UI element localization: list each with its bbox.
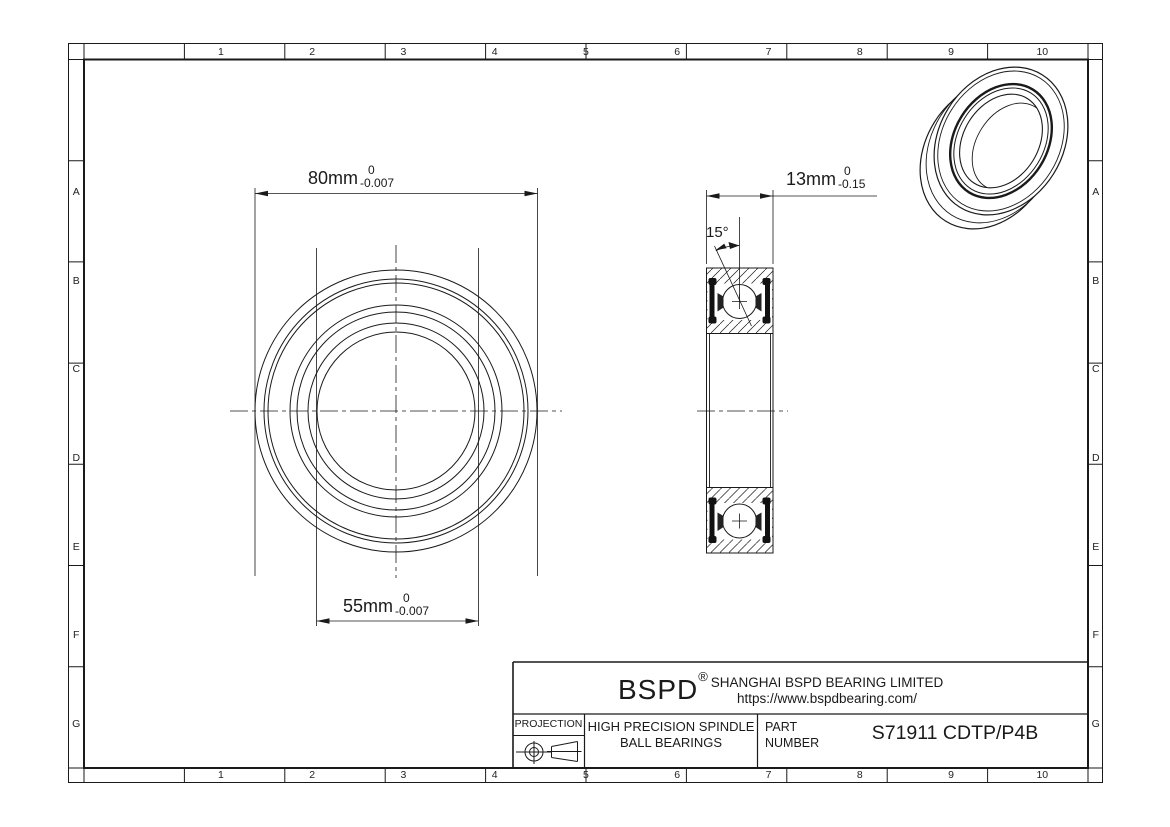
grid-row-label: G (69, 679, 85, 768)
grid-column-label: 2 (267, 768, 358, 783)
company-website: https://www.bspdbearing.com/ (703, 691, 951, 706)
grid-column-label: 3 (358, 768, 449, 783)
product-line-2: BALL BEARINGS (585, 735, 757, 751)
projection-symbol-icon (516, 741, 582, 764)
company-logo: BSPD® (618, 669, 708, 706)
front-view-centerlines (230, 245, 562, 578)
dimension-tolerance: 0 -0.15 (838, 165, 865, 191)
grid-column-label: 4 (449, 44, 540, 60)
outer-diameter-dimension: 80mm 0 -0.007 (308, 163, 394, 193)
engineering-drawing-page: 12345678910 12345678910 ABCDEFG ABCDEFG … (0, 0, 1170, 827)
grid-column-label: 8 (814, 44, 905, 60)
contact-angle-label: 15° (706, 224, 729, 241)
grid-row-label: C (69, 325, 85, 414)
grid-row-label: G (1088, 679, 1104, 768)
grid-column-label: 1 (175, 768, 266, 783)
row-labels-right: ABCDEFG (1088, 60, 1104, 769)
grid-column-label: 8 (814, 768, 905, 783)
grid-row-label: D (1088, 414, 1104, 503)
grid-column-label: 6 (632, 768, 723, 783)
grid-row-label: B (69, 237, 85, 326)
part-number-value: S71911 CDTP/P4B (830, 722, 1080, 745)
isometric-bearing-view (893, 42, 1095, 254)
grid-column-label: 4 (449, 768, 540, 783)
product-line-1: HIGH PRECISION SPINDLE (585, 719, 757, 735)
grid-column-label: 2 (267, 44, 358, 60)
drawing-linework (0, 0, 1170, 827)
dimension-tolerance: 0 -0.007 (395, 592, 429, 618)
grid-row-label (69, 60, 85, 149)
company-name: SHANGHAI BSPD BEARING LIMITED (703, 675, 951, 690)
grid-row-label: C (1088, 325, 1104, 414)
grid-column-label (84, 768, 175, 783)
grid-row-label: A (69, 148, 85, 237)
grid-row-label: F (69, 591, 85, 680)
bore-diameter-dimension: 55mm 0 -0.007 (343, 591, 429, 621)
grid-column-label (84, 44, 175, 60)
grid-row-label: F (1088, 591, 1104, 680)
product-description: HIGH PRECISION SPINDLE BALL BEARINGS (585, 719, 757, 751)
grid-column-label: 9 (905, 44, 996, 60)
dimension-value: 55mm (343, 596, 393, 617)
grid-row-label: D (69, 414, 85, 503)
grid-column-label: 7 (723, 44, 814, 60)
grid-column-label: 5 (540, 768, 631, 783)
logo-text: BSPD (618, 674, 698, 705)
grid-row-label (1088, 60, 1104, 149)
grid-row-label: E (1088, 502, 1104, 591)
grid-column-label: 1 (175, 44, 266, 60)
grid-column-label: 10 (997, 768, 1088, 783)
dimension-value: 80mm (308, 168, 358, 189)
width-dimension: 13mm 0 -0.15 (786, 164, 865, 194)
grid-column-label: 9 (905, 768, 996, 783)
grid-row-label: E (69, 502, 85, 591)
grid-row-label: B (1088, 237, 1104, 326)
grid-column-label: 10 (997, 44, 1088, 60)
grid-column-label: 5 (540, 44, 631, 60)
grid-column-label: 6 (632, 44, 723, 60)
grid-column-label: 7 (723, 768, 814, 783)
grid-row-label: A (1088, 148, 1104, 237)
part-number-label: PART NUMBER (765, 719, 819, 751)
column-labels-top: 12345678910 (84, 44, 1088, 60)
column-labels-bottom: 12345678910 (84, 768, 1088, 783)
dimension-tolerance: 0 -0.007 (360, 164, 394, 190)
section-view (697, 190, 877, 553)
projection-label: PROJECTION (513, 718, 584, 730)
dimension-value: 13mm (786, 169, 836, 190)
row-labels-left: ABCDEFG (69, 60, 85, 769)
grid-column-label: 3 (358, 44, 449, 60)
front-view (230, 188, 562, 626)
